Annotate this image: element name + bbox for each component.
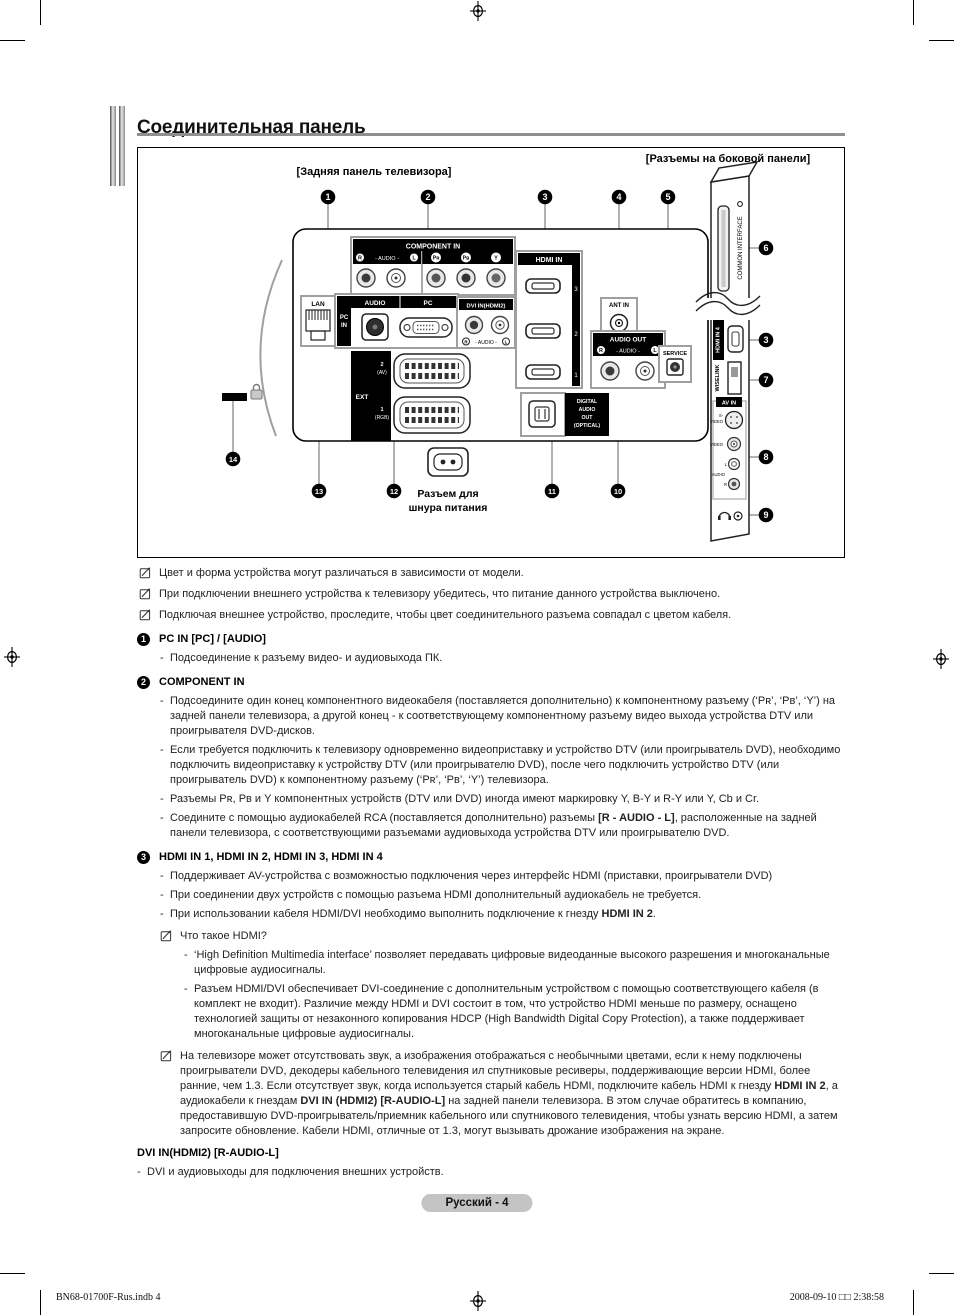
note: Подключая внешнее устройство, проследите…: [139, 608, 849, 623]
hdmi-version-note: На телевизоре может отсутствовать звук, …: [160, 1049, 849, 1139]
lan-port: LAN: [301, 296, 335, 346]
svg-text:4: 4: [616, 192, 621, 202]
section-title: PC IN [PC] / [AUDIO]: [159, 632, 266, 647]
svg-text:2: 2: [425, 192, 430, 202]
kensington-lock-icon: [222, 385, 262, 402]
svg-text:9: 9: [763, 510, 768, 520]
bullet: Поддерживает AV-устройства с возможность…: [160, 869, 849, 884]
connection-panel-diagram: [Задняя панель телевизора] [Разъемы на б…: [137, 147, 845, 558]
svg-text:6: 6: [763, 243, 768, 253]
note-text: Цвет и форма устройства могут различатьс…: [159, 566, 524, 581]
digital-audio-out-block: DIGITAL AUDIO OUT (OPTICAL): [521, 393, 609, 436]
svg-text:OUT: OUT: [582, 415, 594, 421]
bullet: При использовании кабеля HDMI/DVI необхо…: [160, 907, 849, 922]
memo-icon: [139, 588, 151, 600]
note-text: Подключая внешнее устройство, проследите…: [159, 608, 731, 623]
svg-text:7: 7: [763, 375, 768, 385]
bullet: Соедините с помощью аудиокабелей RCA (по…: [160, 811, 849, 841]
title-decor-bar: [110, 106, 116, 186]
what-is-hdmi-note: Что такое HDMI? ‘High Definition Multime…: [160, 929, 849, 1042]
bullet: Разъем HDMI/DVI обеспечивает DVI-соедине…: [184, 982, 849, 1042]
svg-text:11: 11: [548, 487, 556, 496]
svg-text:SERVICE: SERVICE: [663, 351, 687, 357]
svg-text:R: R: [358, 256, 362, 262]
dvi-in-subheading: DVI IN(HDMI2) [R-AUDIO-L]: [137, 1146, 849, 1161]
svg-text:AUDIO: AUDIO: [712, 472, 726, 477]
common-interface-label: COMMON INTERFACE: [738, 216, 744, 279]
section-number: 2: [137, 676, 150, 689]
svg-text:VIDEO: VIDEO: [710, 419, 724, 424]
svg-text:Pʙ: Pʙ: [463, 256, 470, 262]
memo-icon: [139, 609, 151, 621]
section-pc-in: 1PC IN [PC] / [AUDIO] Подсоединение к ра…: [137, 632, 849, 666]
svg-text:- AUDIO -: - AUDIO -: [616, 349, 640, 355]
wiselink-label: WISELINK: [715, 365, 721, 392]
note-text: На телевизоре может отсутствовать звук, …: [180, 1049, 849, 1139]
bullet: Подсоединение к разъему видео- и аудиовы…: [160, 651, 849, 666]
bullet: Если требуется подключить к телевизору о…: [160, 743, 849, 788]
svg-text:1: 1: [380, 407, 383, 413]
manual-page: { "page": { "title": "Соединительная пан…: [0, 0, 954, 1315]
svg-text:LAN: LAN: [311, 301, 325, 308]
note: При подключении внешнего устройства к те…: [139, 587, 849, 602]
bullet: Подсоедините один конец компонентного ви…: [160, 694, 849, 739]
svg-text:(AV): (AV): [377, 370, 387, 376]
section-component-in: 2COMPONENT IN Подсоедините один конец ко…: [137, 675, 849, 841]
svg-text:DIGITAL: DIGITAL: [577, 399, 598, 405]
svg-text:13: 13: [315, 487, 323, 496]
side-panel-caption: [Разъемы на боковой панели]: [646, 153, 811, 165]
svg-text:L: L: [505, 340, 508, 345]
svg-text:VIDEO: VIDEO: [710, 442, 724, 447]
svg-text:3: 3: [542, 192, 547, 202]
svg-text:DVI IN(HDMI2): DVI IN(HDMI2): [467, 304, 506, 310]
registration-mark-icon: [470, 1, 486, 21]
svg-text:12: 12: [390, 487, 398, 496]
svg-text:(RGB): (RGB): [375, 415, 390, 421]
svg-text:S-: S-: [719, 413, 724, 418]
note-text: При подключении внешнего устройства к те…: [159, 587, 720, 602]
crop-mark: [913, 1290, 914, 1315]
note: Цвет и форма устройства могут различатьс…: [139, 566, 849, 581]
bullet: DVI и аудиовыходы для подключения внешни…: [137, 1165, 849, 1180]
svg-text:AUDIO: AUDIO: [579, 407, 596, 413]
memo-icon: [139, 567, 151, 579]
power-cord-label: Разъем для: [417, 488, 478, 500]
bullet: ‘High Definition Multimedia interface’ п…: [184, 948, 849, 978]
svg-text:- AUDIO -: - AUDIO -: [475, 340, 497, 346]
svg-text:(OPTICAL): (OPTICAL): [574, 423, 600, 429]
hdmi4-label: HDMI IN 4: [716, 326, 722, 353]
section-title: COMPONENT IN: [159, 675, 245, 690]
registration-mark-icon: [4, 647, 20, 667]
crop-mark: [40, 1290, 41, 1315]
crop-mark: [40, 0, 41, 25]
svg-text:EXT: EXT: [356, 394, 369, 401]
svg-text:8: 8: [763, 452, 768, 462]
svg-text:ANT IN: ANT IN: [609, 303, 629, 309]
svg-text:3: 3: [763, 335, 768, 345]
crop-mark: [929, 1273, 954, 1274]
power-cord-label: шнура питания: [409, 502, 488, 514]
print-footer-timestamp: 2008-09-10 □□ 2:38:58: [790, 1292, 884, 1303]
title-decor-bar: [119, 106, 125, 186]
svg-text:5: 5: [665, 192, 670, 202]
svg-text:HDMI IN: HDMI IN: [536, 257, 563, 264]
svg-text:R: R: [724, 482, 727, 487]
note-text: Что такое HDMI?: [180, 929, 267, 944]
dvi-in-block: DVI IN(HDMI2) R - AUDIO - L: [457, 297, 515, 348]
service-port: SERVICE: [659, 346, 691, 382]
hdmi-in-block: HDMI IN 3 2 1: [516, 251, 582, 388]
crop-mark: [0, 40, 25, 41]
pc-in-block: PC IN AUDIO PC: [335, 294, 458, 348]
page-number-pill: Русский - 4: [421, 1194, 532, 1212]
registration-mark-icon: [470, 1291, 486, 1311]
section-title: HDMI IN 1, HDMI IN 2, HDMI IN 3, HDMI IN…: [159, 850, 383, 865]
memo-icon: [160, 1050, 172, 1062]
svg-text:10: 10: [614, 487, 622, 496]
bullet: Разъемы Pʀ, Pʙ и Y компонентных устройст…: [160, 792, 849, 807]
svg-text:AUDIO: AUDIO: [365, 300, 386, 307]
svg-text:IN: IN: [341, 323, 347, 329]
memo-icon: [160, 930, 172, 942]
svg-text:R: R: [599, 348, 603, 354]
svg-text:Y: Y: [494, 256, 498, 262]
registration-mark-icon: [933, 649, 949, 669]
svg-text:14: 14: [229, 455, 238, 464]
rear-panel-caption: [Задняя панель телевизора]: [297, 166, 452, 178]
svg-text:- AUDIO -: - AUDIO -: [375, 256, 399, 262]
bullet: При соединении двух устройств с помощью …: [160, 888, 849, 903]
av-in-label: AV IN: [722, 401, 736, 407]
component-in-block: COMPONENT IN R - AUDIO - L Pʀ Pʙ Y: [351, 237, 515, 295]
body-text: Цвет и форма устройства могут различатьс…: [137, 566, 849, 1180]
section-number: 3: [137, 851, 150, 864]
title-rule: [137, 133, 845, 136]
svg-text:PC: PC: [423, 300, 432, 307]
crop-mark: [929, 40, 954, 41]
crop-mark: [0, 1273, 25, 1274]
svg-text:2: 2: [380, 362, 383, 368]
section-hdmi-in: 3HDMI IN 1, HDMI IN 2, HDMI IN 3, HDMI I…: [137, 850, 849, 1180]
svg-text:AUDIO OUT: AUDIO OUT: [610, 337, 647, 344]
section-number: 1: [137, 633, 150, 646]
print-footer-filename: BN68-01700F-Rus.indb 4: [56, 1292, 160, 1303]
audio-out-block: AUDIO OUT R - AUDIO - L: [591, 331, 665, 388]
cable-curve: [260, 260, 282, 436]
svg-text:1: 1: [325, 192, 330, 202]
svg-text:COMPONENT IN: COMPONENT IN: [406, 244, 460, 251]
svg-text:Pʀ: Pʀ: [433, 256, 440, 262]
svg-text:PC: PC: [340, 315, 349, 321]
crop-mark: [913, 0, 914, 25]
power-inlet-icon: [428, 448, 468, 476]
